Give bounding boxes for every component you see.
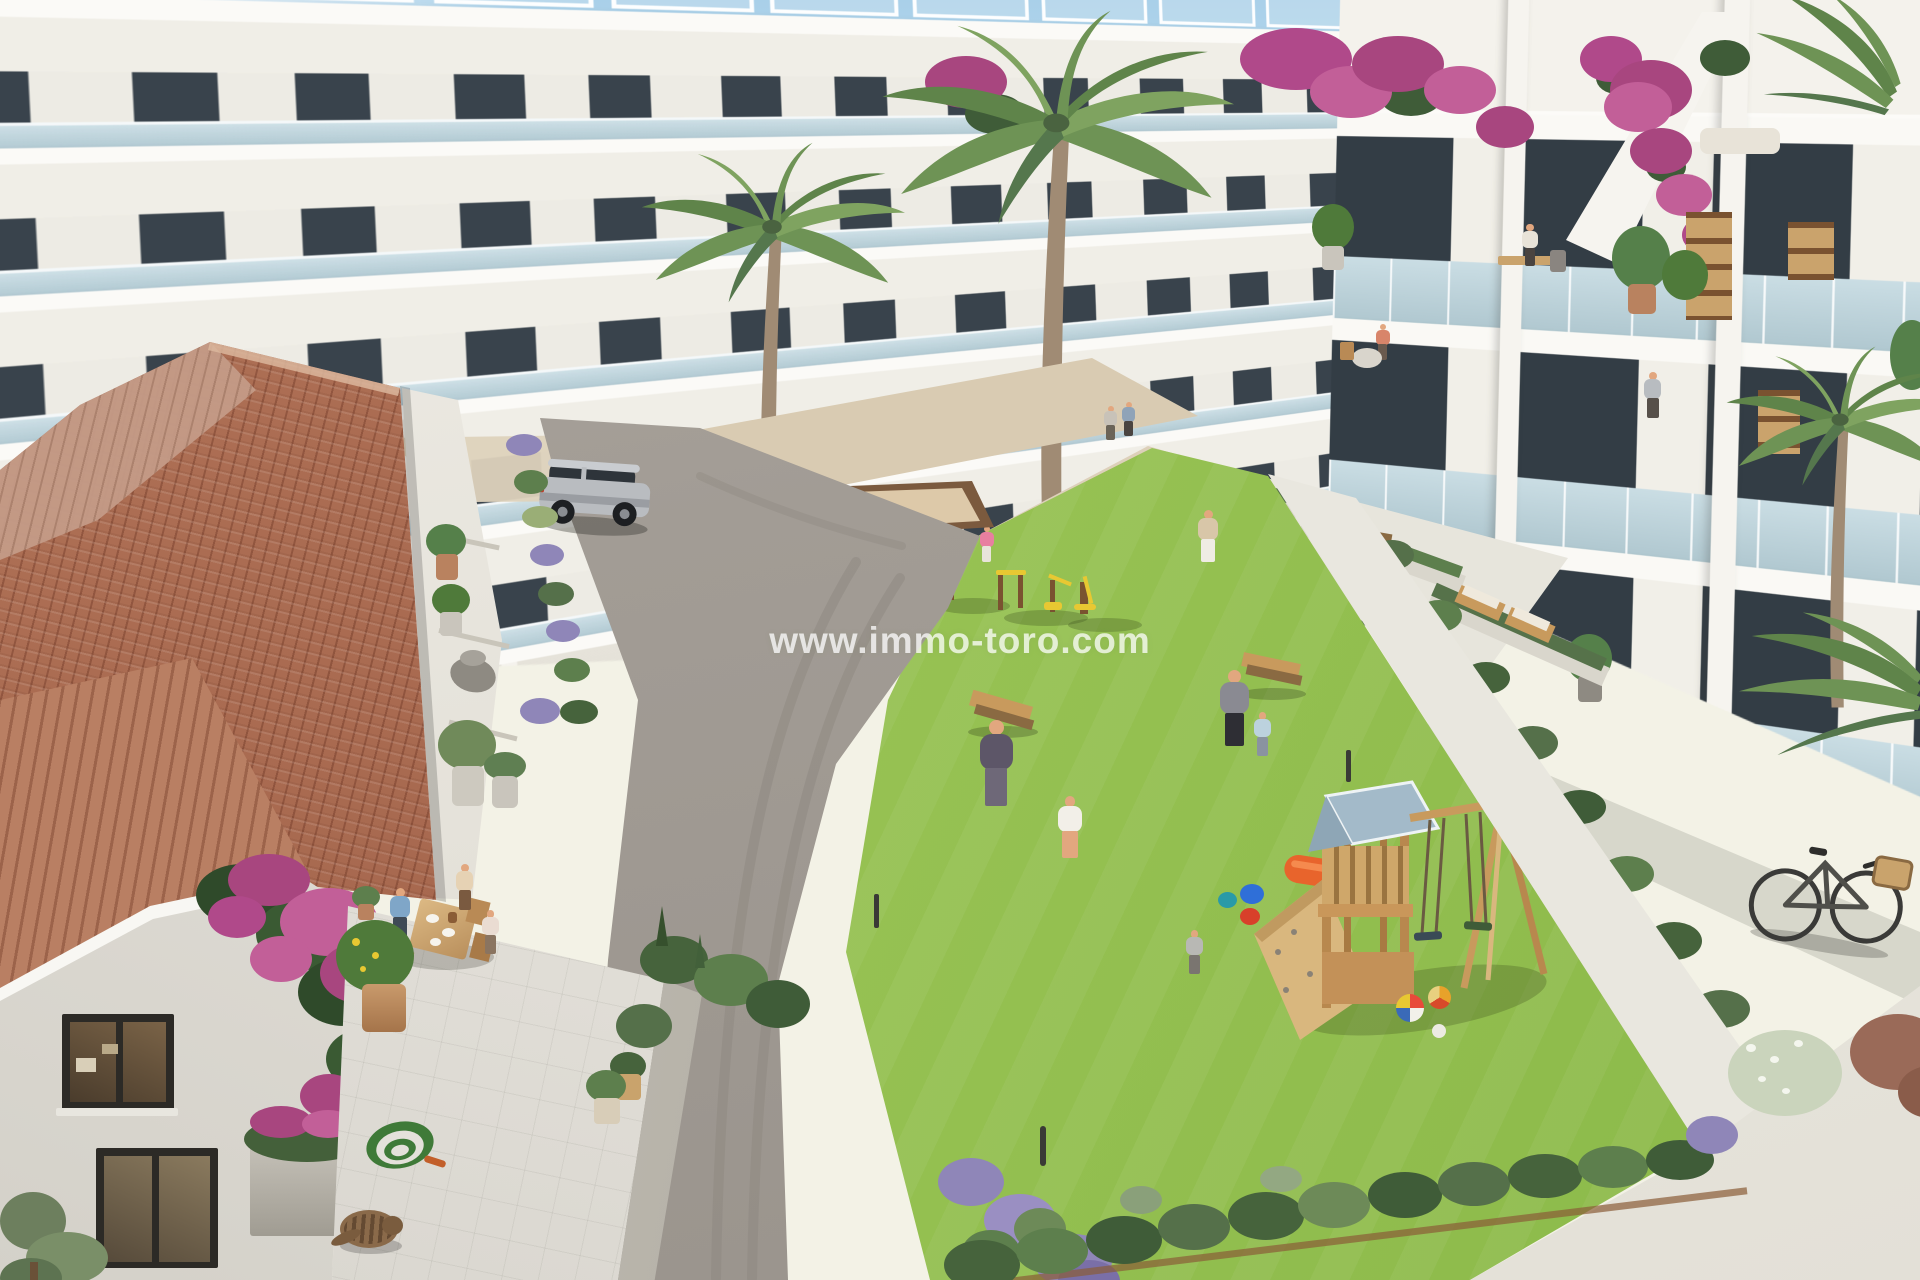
border-shrub xyxy=(1578,1146,1648,1188)
white-flower xyxy=(1794,1040,1803,1047)
border-shrub xyxy=(1298,1182,1370,1228)
border-shrub xyxy=(1086,1216,1162,1264)
bicycle-frame xyxy=(1785,858,1872,919)
lavender-bush xyxy=(1686,1116,1738,1154)
border-shrub xyxy=(1438,1162,1510,1206)
bicycle-seat xyxy=(1809,846,1828,856)
frond-icon xyxy=(1688,556,1920,818)
watermark-text: www.immo-toro.com xyxy=(769,620,1151,662)
white-flower xyxy=(1746,1044,1756,1052)
white-flower xyxy=(1770,1056,1779,1063)
bicycle-basket xyxy=(1872,856,1912,890)
border-shrub xyxy=(1228,1192,1304,1240)
bicycle xyxy=(1732,795,1920,970)
cypress-tree xyxy=(694,934,707,968)
apartment-complex-rendering: www.immo-toro.com xyxy=(0,0,1920,1280)
white-flower xyxy=(1758,1076,1766,1082)
lavender-bush xyxy=(938,1158,1004,1206)
white-flower-bush xyxy=(1728,1030,1842,1116)
sage-bush xyxy=(1120,1186,1162,1214)
cypress-tree xyxy=(654,906,670,946)
sage-bush xyxy=(1260,1166,1302,1192)
border-shrub xyxy=(1508,1154,1582,1198)
border-shrub xyxy=(1158,1204,1230,1250)
border-shrub xyxy=(1368,1172,1442,1218)
palm-fronds-overhang xyxy=(1688,556,1920,818)
border-shrub xyxy=(1016,1228,1088,1274)
white-flower xyxy=(1782,1088,1790,1094)
